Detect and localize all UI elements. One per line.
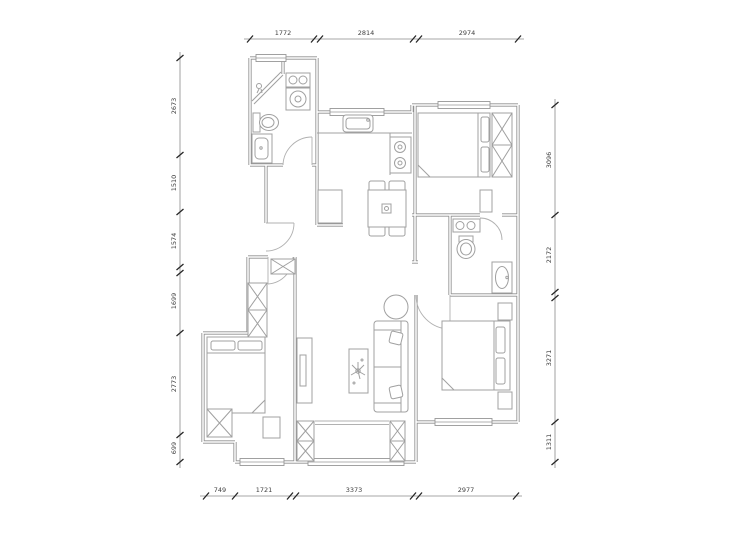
floor-plan-page: 1772 2814 2974 749 1721 3373 2977 bbox=[0, 0, 740, 555]
nightstand-icon bbox=[263, 417, 280, 438]
toilet-icon bbox=[457, 236, 475, 259]
window-icon bbox=[256, 55, 286, 62]
living-room bbox=[297, 295, 408, 461]
bed-icon bbox=[207, 337, 265, 413]
dimension-line-left: 2673 1510 1574 1699 2773 699 bbox=[170, 52, 184, 468]
dim-left-5: 2773 bbox=[170, 376, 178, 393]
dim-top-3: 2974 bbox=[459, 29, 476, 37]
door-swing-icon bbox=[266, 223, 294, 251]
dim-bottom-1: 749 bbox=[214, 486, 226, 494]
round-table-icon bbox=[384, 295, 408, 319]
dimension-line-right: 3096 2172 3271 1311 bbox=[545, 99, 559, 468]
bathroom-2 bbox=[453, 219, 512, 293]
sink-icon bbox=[252, 134, 272, 163]
door-swing-icon bbox=[283, 137, 312, 165]
nightstand-icon bbox=[498, 392, 512, 409]
dimension-line-top: 1772 2814 2974 bbox=[244, 29, 524, 43]
nightstand-icon bbox=[498, 303, 512, 320]
balcony-slider bbox=[315, 421, 389, 425]
dining-area bbox=[368, 181, 406, 236]
kitchen-sink-icon bbox=[343, 115, 373, 132]
toilet-icon bbox=[253, 113, 279, 132]
dim-left-3: 1574 bbox=[170, 233, 178, 250]
window-icon bbox=[330, 109, 384, 116]
basin-icon bbox=[453, 219, 480, 232]
sink-icon bbox=[492, 262, 512, 293]
bed-icon bbox=[442, 321, 510, 390]
sofa-icon bbox=[374, 321, 408, 412]
dim-top-1: 1772 bbox=[275, 29, 292, 37]
door-swing-icon bbox=[480, 190, 502, 240]
bedroom-top-right bbox=[418, 113, 512, 177]
pillow-icon bbox=[389, 331, 404, 346]
window-icon bbox=[435, 419, 492, 426]
wardrobe-icon bbox=[492, 113, 512, 177]
tv-cabinet-icon bbox=[297, 338, 312, 403]
dim-right-2: 2172 bbox=[545, 247, 553, 264]
cabinet-x-icon bbox=[271, 259, 295, 274]
window-icon bbox=[438, 102, 490, 109]
floor-plan-canvas: 1772 2814 2974 749 1721 3373 2977 bbox=[0, 0, 740, 555]
dim-right-4: 1311 bbox=[545, 434, 553, 451]
dim-right-1: 3096 bbox=[545, 152, 553, 169]
dim-bottom-3: 3373 bbox=[346, 486, 363, 494]
dim-bottom-2: 1721 bbox=[256, 486, 273, 494]
wardrobe-icon bbox=[248, 283, 267, 337]
dim-left-1: 2673 bbox=[170, 98, 178, 115]
coffee-table-icon bbox=[349, 349, 368, 393]
basin-icon bbox=[286, 73, 310, 87]
dim-left-6: 699 bbox=[170, 442, 178, 454]
cabinet-x-icon bbox=[207, 409, 232, 437]
dim-left-4: 1699 bbox=[170, 293, 178, 310]
dim-left-2: 1510 bbox=[170, 175, 178, 192]
kitchen-cabinet bbox=[318, 190, 342, 223]
pillow-icon bbox=[389, 385, 403, 399]
dim-right-3: 3271 bbox=[545, 350, 553, 367]
window-icon bbox=[240, 459, 284, 466]
master-bedroom bbox=[442, 303, 512, 409]
dimension-line-bottom: 749 1721 3373 2977 bbox=[200, 486, 522, 500]
cabinet-x-icon bbox=[297, 421, 314, 461]
stove-icon bbox=[390, 137, 411, 173]
washing-machine-icon bbox=[286, 88, 310, 110]
shower-icon bbox=[252, 72, 283, 104]
bathroom-1 bbox=[252, 72, 310, 163]
bed-icon bbox=[418, 113, 490, 177]
bedroom-bottom-left bbox=[207, 259, 295, 438]
dining-table-icon bbox=[368, 190, 406, 227]
dim-bottom-4: 2977 bbox=[458, 486, 475, 494]
cabinet-x-icon bbox=[390, 421, 405, 461]
dim-top-2: 2814 bbox=[358, 29, 375, 37]
